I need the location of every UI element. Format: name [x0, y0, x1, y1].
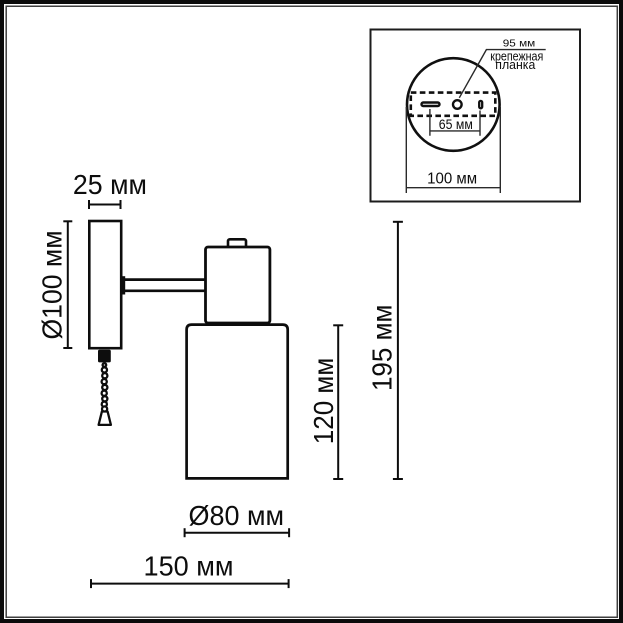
svg-text:планка: планка — [495, 57, 536, 72]
svg-text:25 мм: 25 мм — [73, 169, 147, 200]
svg-text:120 мм: 120 мм — [308, 358, 339, 445]
svg-text:Ø100 мм: Ø100 мм — [36, 231, 67, 340]
svg-text:65 мм: 65 мм — [439, 116, 473, 132]
svg-text:150 мм: 150 мм — [144, 551, 234, 582]
svg-text:100 мм: 100 мм — [427, 171, 477, 188]
svg-text:195 мм: 195 мм — [366, 305, 397, 392]
svg-text:Ø80 мм: Ø80 мм — [189, 500, 285, 531]
